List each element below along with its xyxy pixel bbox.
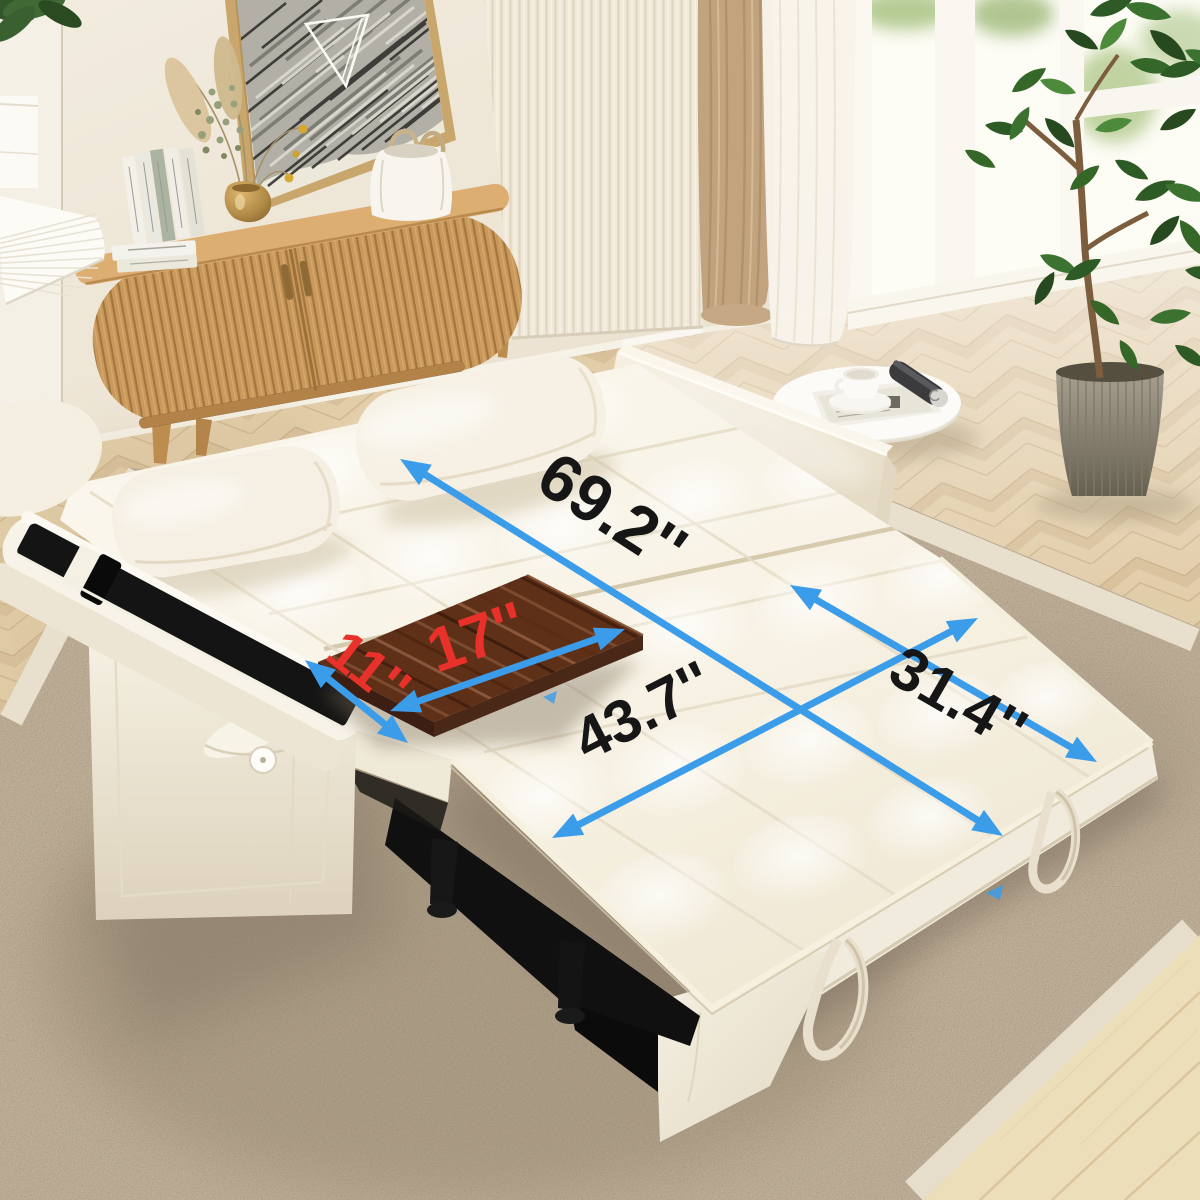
craspedia-flower: [299, 125, 308, 134]
scene-canvas: 69.2'' 43.7'' 31.4'' 17'' 11'': [0, 0, 1200, 1200]
product-photo: 69.2'' 43.7'' 31.4'' 17'' 11'': [0, 0, 1200, 1200]
craspedia-flower: [293, 151, 300, 158]
craspedia-flower: [285, 174, 294, 183]
wall-niche: [0, 96, 38, 188]
sheer-curtain: [762, 0, 856, 346]
